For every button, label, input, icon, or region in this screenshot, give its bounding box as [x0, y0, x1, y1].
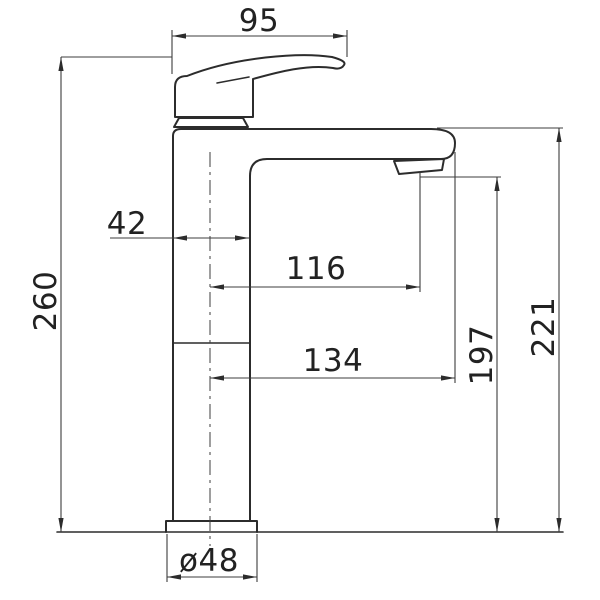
dim134-arrow-left — [210, 375, 224, 380]
dim116-arrow-left — [210, 284, 224, 289]
dimension-lines-group — [58, 30, 563, 582]
dim221-arrow-bottom — [556, 518, 561, 532]
dim-label-body-top-height: 221 — [526, 297, 562, 358]
handle-seam-line — [217, 77, 249, 83]
dim95-arrow-left — [172, 33, 186, 38]
dimension-labels-group: 95 42 260 116 134 197 221 ø48 — [28, 3, 562, 579]
dim221-arrow-top — [556, 128, 561, 142]
dim260-arrow-top — [58, 57, 63, 71]
base-flange-outline — [166, 521, 257, 532]
dim116-arrow-right — [406, 284, 420, 289]
technical-drawing-canvas: 95 42 260 116 134 197 221 ø48 — [0, 0, 600, 600]
dim48-arrow-right — [243, 574, 257, 579]
handle-collar-outline — [174, 118, 248, 127]
dim-label-body-width: 42 — [107, 206, 147, 242]
faucet-dimension-drawing: 95 42 260 116 134 197 221 ø48 — [0, 0, 600, 600]
dim-label-reach-to-spout-end: 134 — [303, 343, 364, 379]
dim260-arrow-bottom — [58, 518, 63, 532]
dim-label-reach-to-outlet: 116 — [286, 251, 347, 287]
dim197-arrow-top — [494, 177, 499, 191]
dim-label-outlet-height: 197 — [464, 325, 500, 386]
dim42-arrow-left — [173, 235, 187, 240]
dim-label-overall-height: 260 — [28, 271, 64, 332]
dim-label-base-diameter: ø48 — [179, 543, 239, 579]
handle-lever-outline — [175, 55, 345, 117]
faucet-outline-group — [57, 55, 563, 546]
dim197-arrow-bottom — [494, 518, 499, 532]
spout-outlet-outline — [394, 159, 444, 174]
dim95-arrow-right — [333, 33, 347, 38]
dim134-arrow-right — [441, 375, 455, 380]
dim42-arrow-right — [235, 235, 249, 240]
dim-label-handle-length: 95 — [239, 3, 279, 39]
faucet-body-outline — [173, 129, 455, 521]
